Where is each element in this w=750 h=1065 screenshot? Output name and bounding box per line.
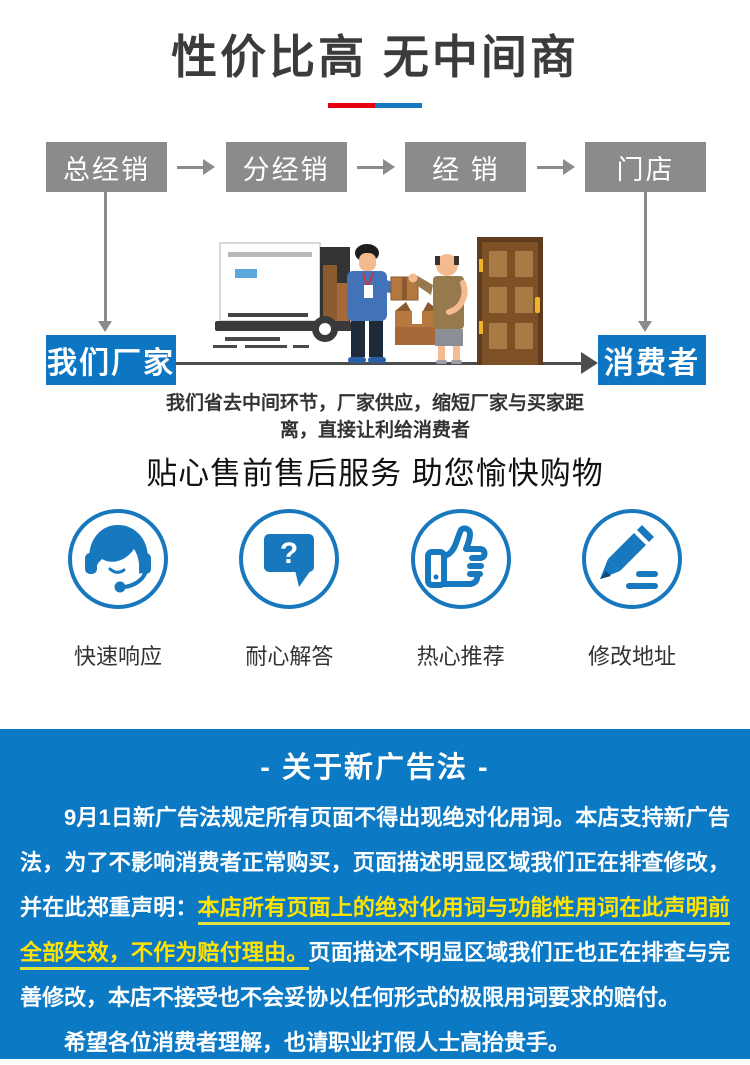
accent-red-bar [328,103,375,108]
distribution-flow-diagram: 总经销 分经销 经 销 门店 我们厂家 消费者 [0,118,750,448]
chain-box-general-distributor: 总经销 [46,142,167,192]
services-section: 贴心售前售后服务 助您愉快购物 快速响应 ? 耐心解答 [0,455,750,671]
title-underline-accent [328,103,422,108]
service-item-edit-address: 修改地址 [562,507,702,671]
accent-blue-bar [375,103,422,108]
service-icon-row: 快速响应 ? 耐心解答 [0,507,750,671]
service-label: 热心推荐 [417,639,505,671]
service-label: 快速响应 [74,639,162,671]
consumer-box: 消费者 [598,335,706,385]
svg-text:?: ? [280,537,298,570]
chain-box-dealer: 经 销 [405,142,526,192]
delivery-illustration [195,225,560,365]
header: 性价比高 无中间商 [0,0,750,108]
question-bubble-icon: ? [237,507,341,611]
customer [409,254,465,364]
service-item-recommend: 热心推荐 [391,507,531,671]
flow-caption-text: 我们省去中间环节，厂家供应，缩短厂家与买家距离，直接让利给消费者 [166,390,584,444]
door [477,237,543,365]
service-item-fast-response: 快速响应 [48,507,188,671]
thumbs-up-icon [409,507,513,611]
notice-paragraph-2: 希望各位消费者理解，也请职业打假人士高抬贵手。 [20,1020,730,1065]
service-label: 修改地址 [588,639,676,671]
delivery-person [347,244,407,363]
truck [213,243,368,348]
down-arrow-icon [104,192,107,322]
service-item-patient-answer: ? 耐心解答 [219,507,359,671]
middleman-chain: 总经销 分经销 经 销 门店 [46,142,706,192]
notice-title: - 关于新广告法 - [20,749,730,787]
page-title: 性价比高 无中间商 [0,30,750,85]
down-arrow-icon [644,192,647,322]
right-arrowhead-icon [581,352,598,374]
pencil-icon [580,507,684,611]
notice-paragraph-1: 9月1日新广告法规定所有页面不得出现绝对化用词。本店支持新广告法，为了不影响消费… [20,795,730,1020]
factory-box: 我们厂家 [46,335,176,385]
services-title: 贴心售前售后服务 助您愉快购物 [0,455,750,492]
ad-law-notice-section: - 关于新广告法 - 9月1日新广告法规定所有页面不得出现绝对化用词。本店支持新… [0,729,750,1059]
chain-box-store: 门店 [585,142,706,192]
service-label: 耐心解答 [245,639,333,671]
right-arrow-icon [347,159,406,175]
flow-caption: 我们省去中间环节，厂家供应，缩短厂家与买家距离，直接让利给消费者 [0,390,750,444]
right-arrow-icon [526,159,585,175]
right-arrow-icon [167,159,226,175]
headset-icon [66,507,170,611]
chain-box-sub-distributor: 分经销 [226,142,347,192]
